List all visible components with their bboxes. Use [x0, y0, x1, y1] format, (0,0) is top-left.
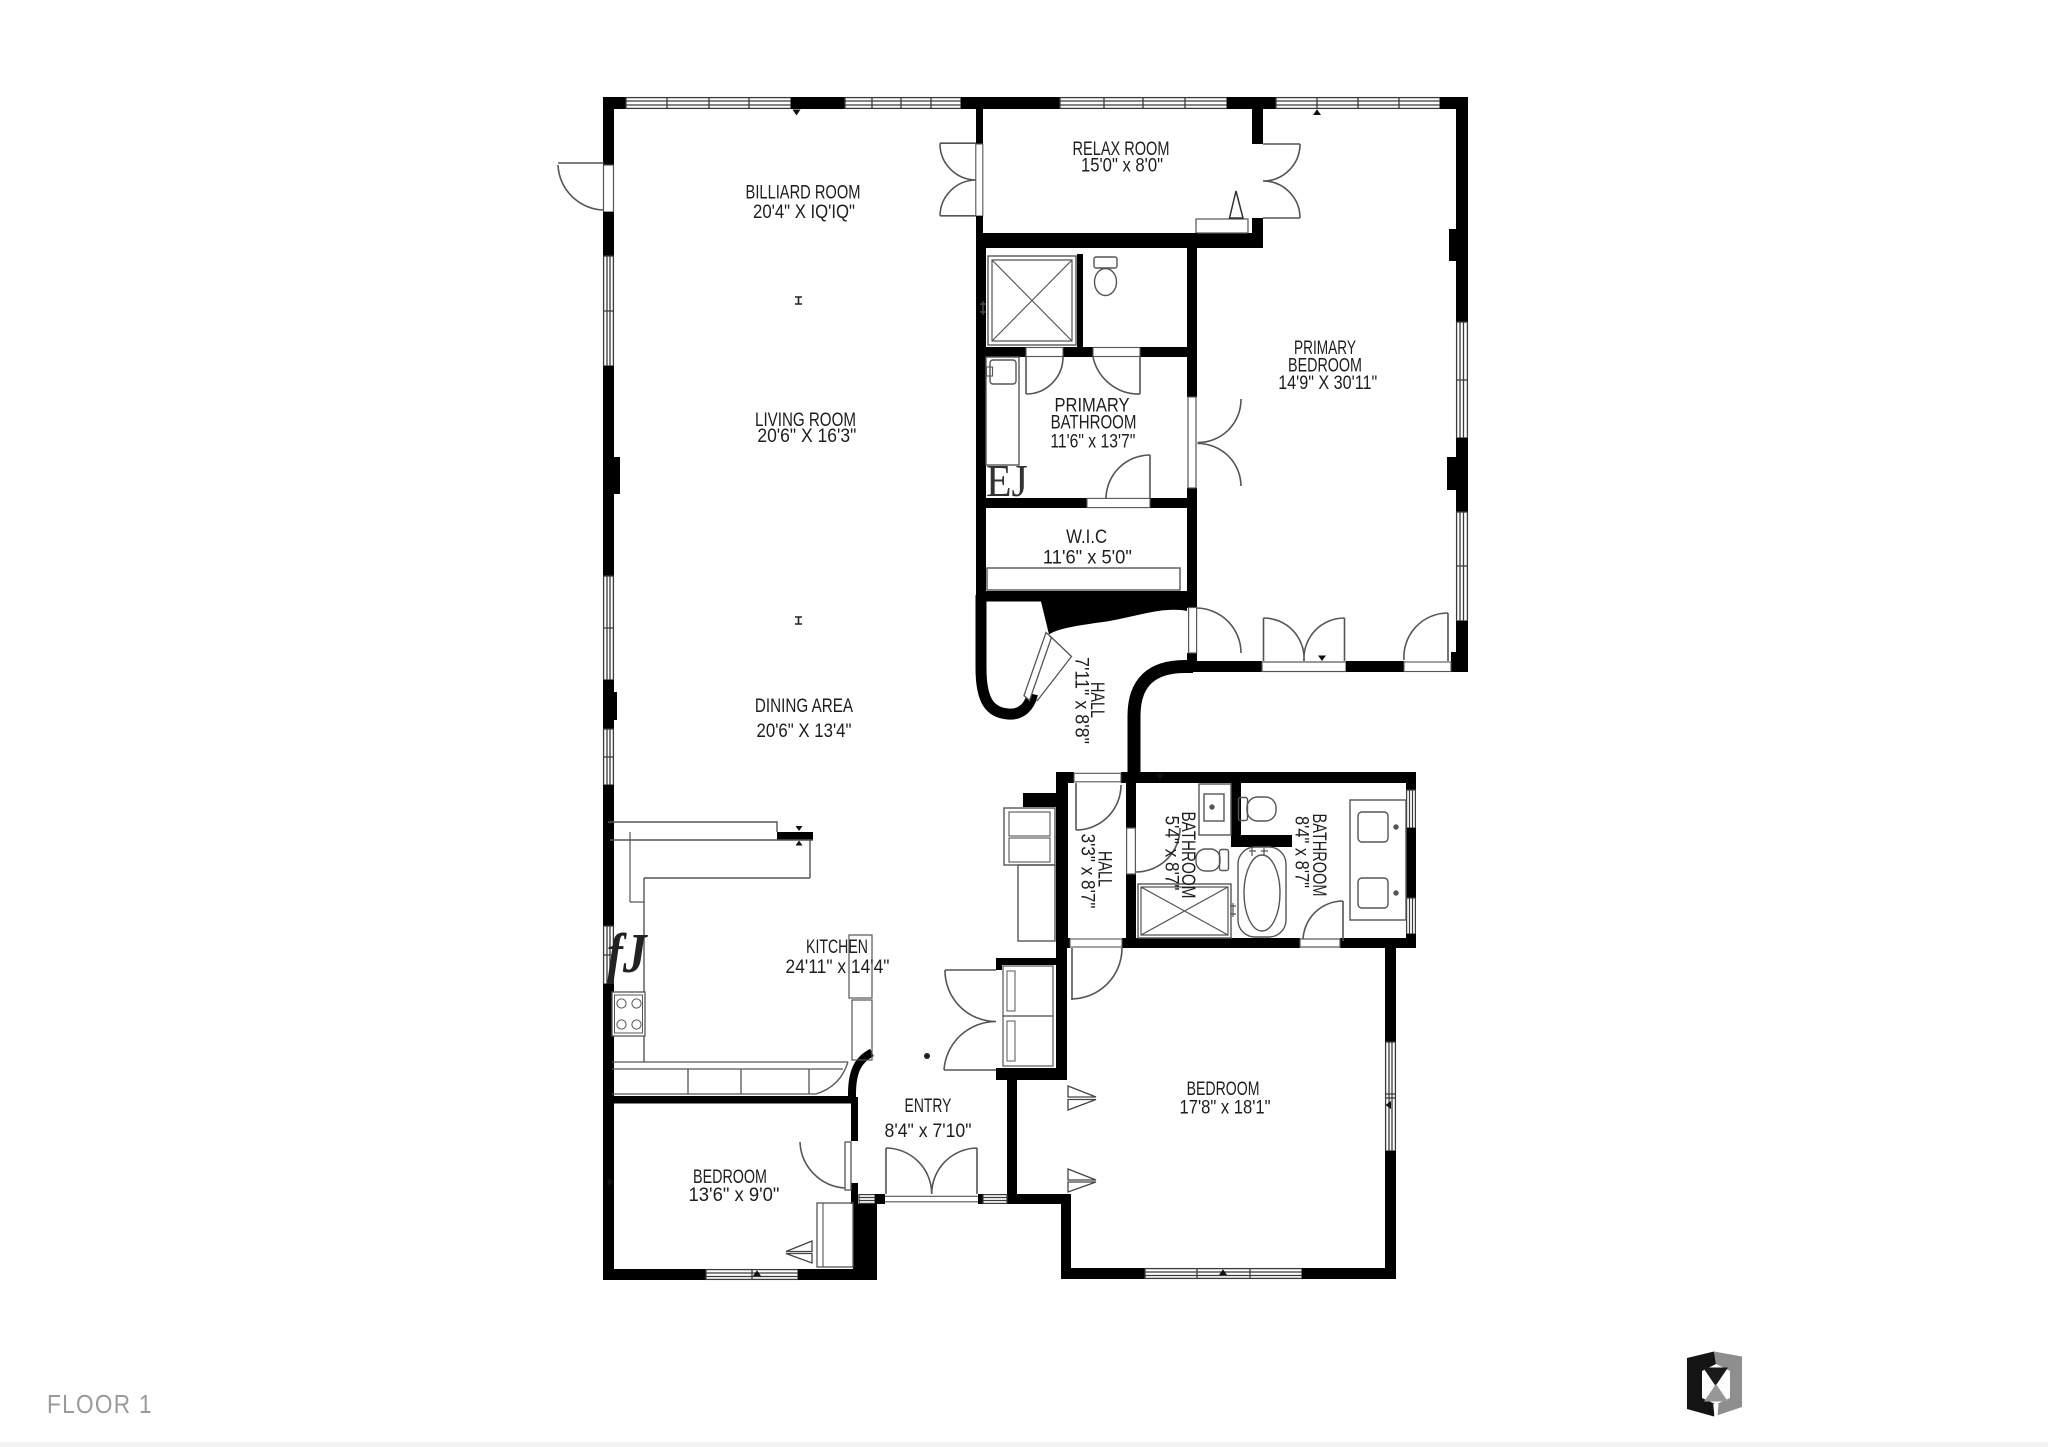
svg-text:7'11" x 8'8": 7'11" x 8'8"	[1071, 657, 1093, 744]
svg-text:EJ: EJ	[986, 457, 1028, 507]
svg-text:W.I.C: W.I.C	[1066, 526, 1107, 547]
svg-text:20'6" X 16'3": 20'6" X 16'3"	[757, 424, 856, 446]
svg-text:14'9" X 30'11": 14'9" X 30'11"	[1278, 372, 1377, 394]
svg-text:FLOOR 1: FLOOR 1	[47, 1391, 153, 1420]
svg-text:15'0" x 8'0": 15'0" x 8'0"	[1081, 154, 1163, 175]
svg-text:BILLIARD ROOM: BILLIARD ROOM	[746, 182, 861, 203]
svg-text:5'4" x 8'7": 5'4" x 8'7"	[1161, 816, 1182, 891]
svg-text:13'6" x 9'0": 13'6" x 9'0"	[689, 1184, 780, 1205]
svg-text:20'4" X IQ'IQ": 20'4" X IQ'IQ"	[753, 201, 855, 222]
svg-text:8'4" x 8'7": 8'4" x 8'7"	[1291, 816, 1312, 888]
svg-text:fJ: fJ	[607, 924, 648, 985]
svg-text:8'4" x 7'10": 8'4" x 7'10"	[885, 1119, 972, 1141]
svg-text:20'6" X 13'4": 20'6" X 13'4"	[756, 720, 851, 741]
svg-text:11'6" x 5'0": 11'6" x 5'0"	[1043, 546, 1132, 567]
svg-text:17'8" x 18'1": 17'8" x 18'1"	[1180, 1097, 1271, 1118]
svg-text:11'6" x 13'7": 11'6" x 13'7"	[1050, 430, 1135, 452]
svg-text:24'11" x 14'4": 24'11" x 14'4"	[786, 956, 890, 977]
svg-text:ENTRY: ENTRY	[905, 1095, 952, 1117]
svg-text:DINING AREA: DINING AREA	[755, 694, 854, 716]
svg-text:KITCHEN: KITCHEN	[806, 936, 868, 958]
svg-text:3'3" x 8'7": 3'3" x 8'7"	[1077, 834, 1098, 909]
